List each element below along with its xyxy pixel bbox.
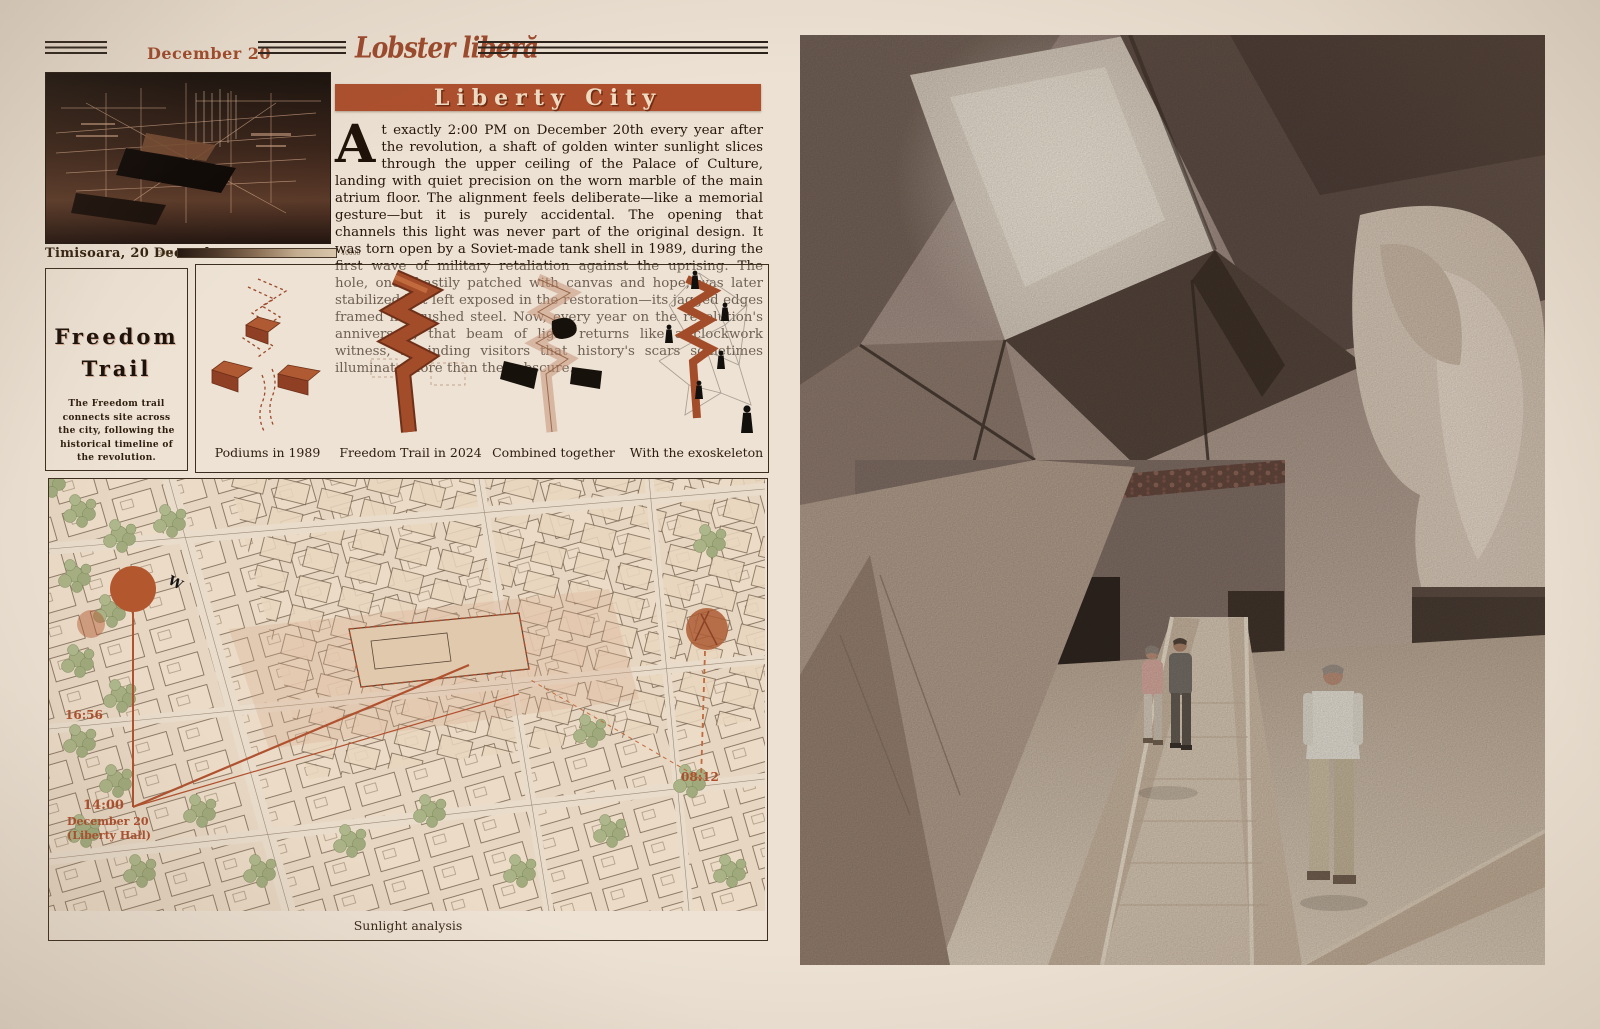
freedom-trail-title: Freedom Trail — [46, 321, 187, 384]
podium-blocks — [212, 317, 320, 395]
diagram-caption-4: With the exoskeleton — [630, 445, 763, 460]
event-date-label: December 20 — [67, 815, 149, 828]
city-map: W 16:56 14:00 December 20 (Liberty Hall)… — [49, 479, 765, 911]
diagram-podiums-1989: Podiums in 1989 — [196, 265, 339, 460]
freedom-trail-description: The Freedom trail connects site across t… — [46, 398, 187, 466]
freedom-trail-title-line2: Trail — [46, 353, 187, 385]
diagram-caption-1: Podiums in 1989 — [215, 445, 321, 460]
sunlight-map-panel: W 16:56 14:00 December 20 (Liberty Hall)… — [48, 478, 768, 941]
podiums-diagram-icon — [200, 265, 335, 443]
headline: Liberty City — [434, 85, 662, 111]
diagram-caption-2: Freedom Trail in 2024 — [339, 445, 481, 460]
header-rule-mid — [258, 41, 346, 54]
sunrise-time-label: 08:12 — [681, 770, 719, 784]
diagram-freedom-trail-2024: Freedom Trail in 2024 — [339, 265, 482, 460]
faded-sun-icon — [77, 610, 105, 638]
event-place-label: (Liberty Hall) — [67, 829, 151, 842]
header-rule-left — [45, 41, 107, 54]
sunset-sun-icon — [110, 566, 156, 612]
article-body: At exactly 2:00 PM on December 20th ever… — [335, 122, 763, 258]
exoskeleton-diagram-icon — [629, 265, 764, 443]
diagram-caption-3: Combined together — [492, 445, 615, 460]
site-photo — [45, 72, 331, 244]
photo-scalebar: 5000 40000 — [158, 248, 360, 258]
interior-render — [800, 35, 1545, 965]
site-photo-drawing — [46, 73, 330, 243]
freedom-trail-title-line1: Freedom — [46, 321, 187, 353]
event-time-label: 14:00 — [83, 798, 124, 813]
freedom-trail-panel: Freedom Trail The Freedom trail connects… — [45, 268, 188, 471]
headline-banner: Liberty City — [335, 84, 761, 111]
scale-min-label: 5000 — [158, 250, 173, 257]
issue-date: December 20 — [147, 44, 271, 63]
diagram-exoskeleton: With the exoskeleton — [625, 265, 768, 460]
sunset-time-label: 16:56 — [65, 708, 103, 722]
combined-diagram-icon — [486, 265, 621, 443]
trail-diagram-icon — [343, 265, 478, 443]
article-dropcap: A — [335, 122, 381, 166]
diagram-combined: Combined together — [482, 265, 625, 460]
header-rule-right — [478, 41, 768, 54]
map-caption: Sunlight analysis — [49, 918, 767, 933]
interior-render-art — [800, 35, 1545, 965]
diagrams-panel: Podiums in 1989 Freedom Trail in 2024 Co… — [195, 264, 769, 473]
scale-gradient-bar — [177, 248, 337, 258]
